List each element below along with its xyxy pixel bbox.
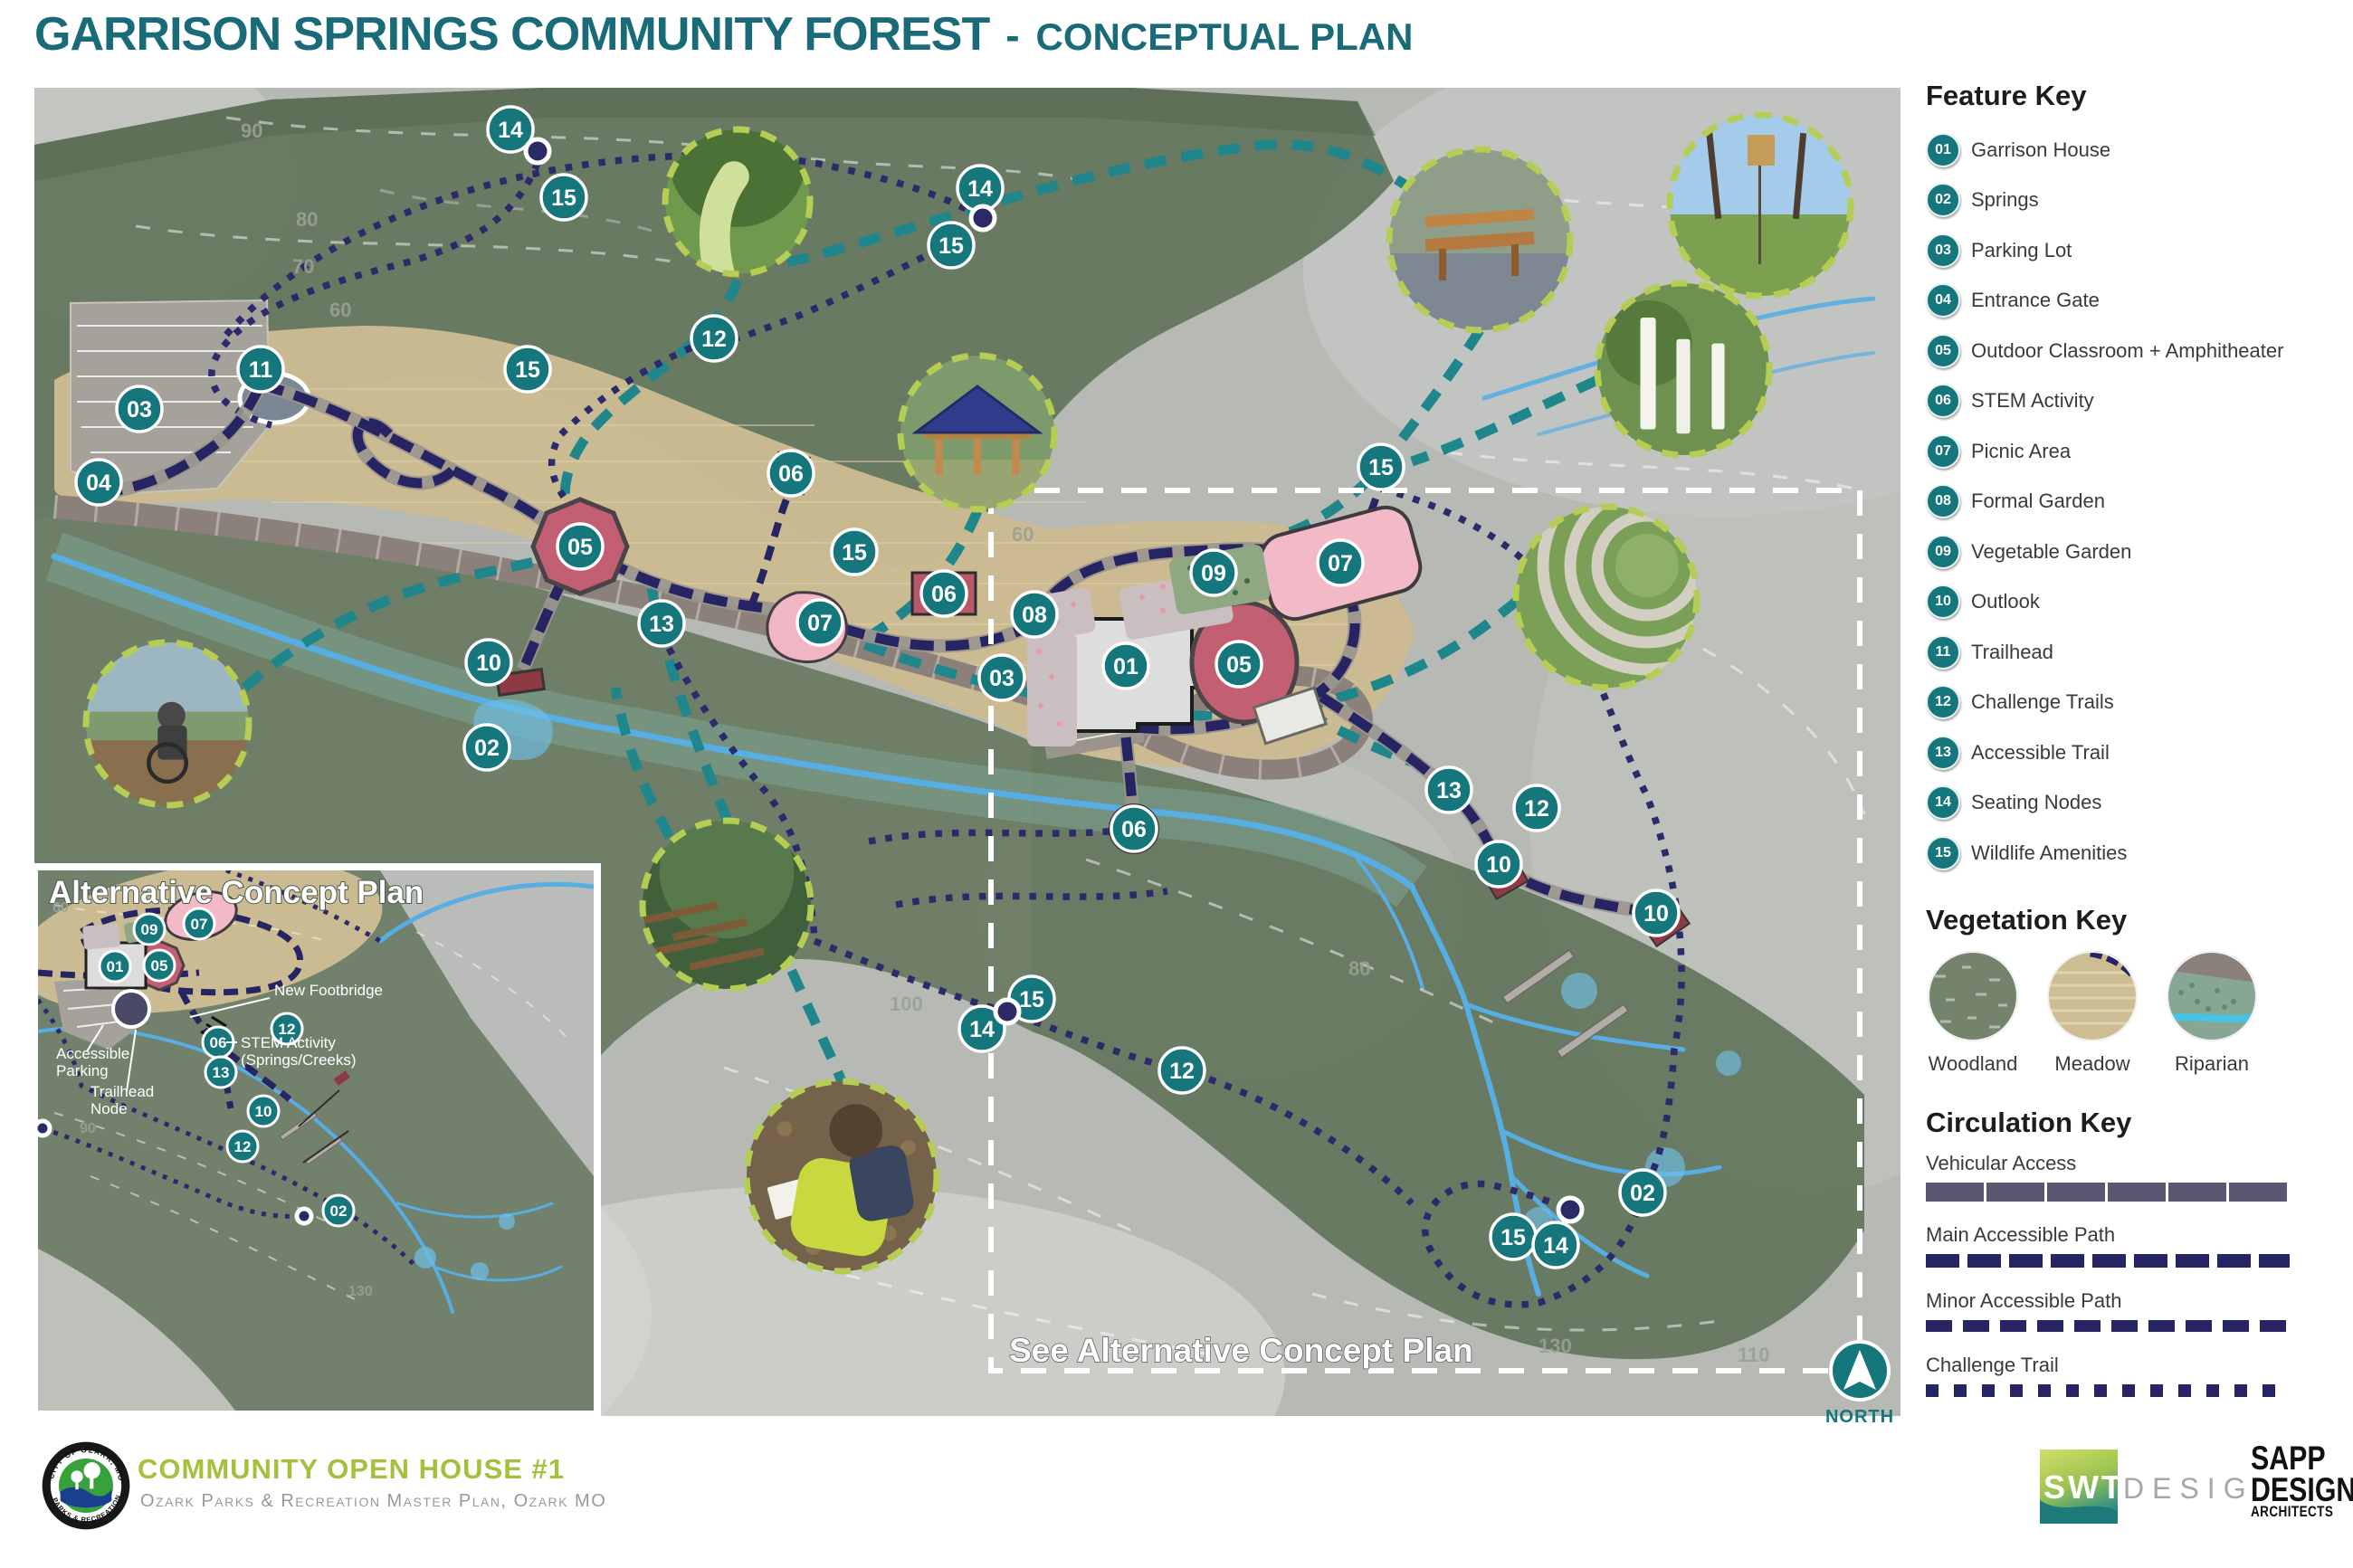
map-marker-09: 09 (134, 914, 165, 945)
map-marker-10: 10 (466, 640, 511, 685)
inset-title: Alternative Concept Plan (49, 875, 424, 910)
svg-text:14: 14 (967, 176, 993, 202)
map-marker-14: 14 (1533, 1222, 1578, 1268)
circulation-item-minor: Minor Accessible Path (1926, 1289, 2338, 1332)
feature-key-item-07: 07Picnic Area (1926, 426, 2338, 477)
north-arrow: NORTH (1825, 1342, 1894, 1427)
svg-text:04: 04 (86, 470, 111, 496)
feature-key-badge: 08 (1926, 484, 1960, 518)
feature-key-label: Vegetable Garden (1971, 540, 2131, 564)
feature-key-label: Challenge Trails (1971, 690, 2114, 714)
svg-text:06: 06 (210, 1034, 227, 1051)
feature-key-badge: 09 (1926, 535, 1960, 569)
svg-text:New Footbridge: New Footbridge (274, 982, 383, 999)
feature-key-label: Seating Nodes (1971, 791, 2101, 814)
feature-key-badge: 03 (1926, 233, 1960, 268)
feature-key-list: 01Garrison House02Springs03Parking Lot04… (1926, 125, 2338, 879)
map-marker-08: 08 (1012, 592, 1057, 637)
circulation-item-vehicular: Vehicular Access (1926, 1152, 2338, 1202)
map-marker-12: 12 (691, 316, 737, 361)
feature-key-badge: 15 (1926, 836, 1960, 870)
map-marker-03: 03 (117, 386, 162, 432)
swt-text: SWT (2043, 1468, 2124, 1506)
circulation-item-main: Main Accessible Path (1926, 1223, 2338, 1268)
map-marker-02: 02 (323, 1195, 354, 1226)
circulation-label: Challenge Trail (1926, 1354, 2338, 1377)
vegetation-swatch-meadow: Meadow (2045, 949, 2139, 1076)
feature-key-badge: 05 (1926, 334, 1960, 368)
svg-text:05: 05 (151, 957, 168, 974)
feature-key-label: Springs (1971, 188, 2039, 212)
trail-endpoint-dot (1558, 1198, 1582, 1221)
feature-key-item-12: 12Challenge Trails (1926, 678, 2338, 728)
vegetation-swatch-riparian: Riparian (2165, 949, 2259, 1076)
circulation-key-list: Vehicular AccessMain Accessible PathMino… (1926, 1152, 2338, 1397)
feature-key-label: Outlook (1971, 590, 2040, 613)
trail-endpoint-dot (995, 1000, 1019, 1023)
map-marker-15: 15 (541, 175, 586, 220)
contour-label: 70 (292, 255, 314, 278)
contour-label: 100 (890, 993, 923, 1015)
feature-key-label: Entrance Gate (1971, 289, 2100, 312)
map-marker-10: 10 (1634, 890, 1679, 936)
trail-endpoint-dot (971, 206, 995, 230)
trail-endpoint-dot (35, 1121, 50, 1136)
feature-key-label: Trailhead (1971, 641, 2053, 664)
circulation-item-challenge: Challenge Trail (1926, 1354, 2338, 1397)
sapp-line1: SAPP (2251, 1442, 2353, 1474)
svg-text:14: 14 (1543, 1233, 1568, 1259)
circulation-swatch-main (1926, 1254, 2290, 1268)
map-marker-12: 12 (227, 1131, 258, 1162)
map-marker-04: 04 (76, 460, 121, 505)
svg-text:10: 10 (476, 651, 501, 676)
feature-key-item-11: 11Trailhead (1926, 627, 2338, 678)
contour-label: 130 (1538, 1335, 1572, 1357)
map-marker-01: 01 (100, 951, 130, 982)
feature-key-item-05: 05Outdoor Classroom + Amphitheater (1926, 326, 2338, 376)
map-marker-06: 06 (1111, 806, 1157, 851)
svg-text:12: 12 (234, 1138, 252, 1155)
contour-label: 90 (80, 1121, 96, 1136)
map-marker-07: 07 (797, 600, 843, 645)
svg-text:06: 06 (931, 582, 957, 607)
feature-key-label: Wildlife Amenities (1971, 841, 2127, 865)
svg-text:02: 02 (1630, 1181, 1655, 1206)
svg-text:15: 15 (1500, 1225, 1526, 1250)
feature-key-item-13: 13Accessible Trail (1926, 727, 2338, 778)
feature-key-badge: 12 (1926, 685, 1960, 719)
svg-text:03: 03 (127, 397, 152, 423)
map-marker-01: 01 (1103, 643, 1148, 689)
feature-key-badge: 14 (1926, 785, 1960, 820)
sapp-line2: DESIGN (2251, 1474, 2353, 1506)
feature-key-item-09: 09Vegetable Garden (1926, 527, 2338, 577)
map-marker-15: 15 (929, 223, 974, 268)
map-marker-02: 02 (1620, 1170, 1665, 1215)
open-house-subtitle: Ozark Parks & Recreation Master Plan, Oz… (140, 1491, 606, 1512)
svg-text:15: 15 (515, 357, 540, 383)
map-marker-14: 14 (957, 166, 1003, 211)
svg-text:05: 05 (567, 535, 593, 560)
circulation-swatch-challenge (1926, 1384, 2290, 1397)
map-marker-10: 10 (248, 1096, 279, 1126)
map-marker-15: 15 (505, 347, 550, 392)
contour-label: 110 (1738, 1344, 1770, 1366)
sapp-design-logo: SAPP DESIGN ARCHITECTS (2251, 1442, 2353, 1520)
svg-text:06: 06 (778, 461, 804, 487)
svg-text:07: 07 (191, 916, 208, 933)
map-marker-11: 11 (238, 347, 283, 392)
svg-text:13: 13 (213, 1064, 230, 1081)
map-marker-05: 05 (557, 524, 603, 569)
contour-label: 130 (348, 1284, 373, 1299)
feature-key-label: Parking Lot (1971, 239, 2072, 262)
map-marker-10: 10 (1476, 841, 1521, 887)
feature-key-item-14: 14Seating Nodes (1926, 778, 2338, 829)
circulation-label: Vehicular Access (1926, 1152, 2338, 1175)
map-marker-13: 13 (205, 1057, 236, 1088)
feature-key-badge: 01 (1926, 133, 1960, 167)
feature-key-label: Picnic Area (1971, 440, 2071, 463)
svg-text:03: 03 (989, 666, 1015, 691)
map-marker-05: 05 (144, 950, 175, 981)
svg-text:05: 05 (1226, 652, 1252, 678)
vegetation-swatch-woodland: Woodland (1926, 949, 2020, 1076)
map-marker-09: 09 (1191, 550, 1236, 595)
feature-key-item-02: 02Springs (1926, 176, 2338, 226)
vegetation-label: Riparian (2175, 1052, 2249, 1076)
feature-key-item-04: 04Entrance Gate (1926, 276, 2338, 327)
map-marker-13: 13 (639, 601, 684, 646)
svg-text:12: 12 (1169, 1059, 1195, 1084)
map-marker-06: 06 (768, 451, 814, 496)
map-marker-02: 02 (464, 725, 510, 770)
map-marker-15: 15 (1491, 1214, 1536, 1259)
svg-text:14: 14 (498, 118, 523, 143)
svg-text:10: 10 (255, 1103, 272, 1120)
svg-text:08: 08 (1022, 603, 1047, 628)
svg-text:13: 13 (1436, 778, 1462, 803)
open-house-title: COMMUNITY OPEN HOUSE #1 (138, 1453, 565, 1486)
feature-key-item-15: 15Wildlife Amenities (1926, 828, 2338, 879)
alternative-concept-inset: Alternative Concept Plan 090701051206131… (5, 835, 597, 1414)
feature-key-badge: 11 (1926, 635, 1960, 670)
feature-key-badge: 06 (1926, 384, 1960, 418)
feature-key-item-01: 01Garrison House (1926, 125, 2338, 176)
circulation-swatch-minor (1926, 1320, 2290, 1332)
see-alternative-label: See Alternative Concept Plan (1009, 1332, 1473, 1369)
map-marker-13: 13 (1426, 767, 1472, 813)
conceptual-plan-page: GARRISON SPRINGS COMMUNITY FOREST - CONC… (0, 0, 2353, 1568)
map-marker-07: 07 (184, 908, 214, 939)
svg-text:10: 10 (1643, 901, 1669, 927)
feature-key-badge: 04 (1926, 283, 1960, 318)
swt-design-text: DESIGN (2123, 1472, 2244, 1505)
svg-text:13: 13 (649, 612, 674, 637)
map-marker-06: 06 (921, 571, 967, 616)
feature-key-badge: 13 (1926, 736, 1960, 770)
feature-key-label: Garrison House (1971, 138, 2110, 162)
feature-key-heading: Feature Key (1926, 80, 2338, 112)
feature-key-label: Accessible Trail (1971, 741, 2110, 765)
feature-key-item-06: 06STEM Activity (1926, 376, 2338, 427)
feature-key-badge: 10 (1926, 584, 1960, 619)
svg-text:07: 07 (807, 611, 833, 636)
map-marker-05: 05 (1216, 641, 1262, 687)
svg-text:07: 07 (1328, 551, 1353, 576)
trail-endpoint-dot (526, 139, 549, 163)
svg-text:02: 02 (474, 736, 500, 761)
feature-key-badge: 07 (1926, 434, 1960, 469)
vegetation-key-row: WoodlandMeadowRiparian (1926, 949, 2338, 1076)
habitat-posts-photo (1597, 283, 1769, 455)
svg-text:06: 06 (1121, 817, 1147, 842)
map-marker-12: 12 (1514, 785, 1559, 831)
circulation-swatch-vehicular (1926, 1183, 2290, 1202)
contour-label: 60 (52, 900, 69, 916)
stem-activity-photo (747, 1081, 937, 1271)
svg-text:15: 15 (842, 540, 867, 565)
pavilion-photo (900, 356, 1054, 513)
legend-panel: Feature Key 01Garrison House02Springs03P… (1926, 80, 2338, 1419)
circulation-label: Main Accessible Path (1926, 1223, 2338, 1247)
contour-label: 90 (241, 119, 262, 142)
vegetation-key-heading: Vegetation Key (1926, 904, 2338, 936)
svg-text:15: 15 (1368, 455, 1394, 480)
svg-text:09: 09 (141, 921, 158, 938)
map-marker-07: 07 (1318, 540, 1363, 585)
svg-text:14: 14 (969, 1017, 995, 1042)
svg-text:01: 01 (1113, 654, 1138, 679)
circulation-label: Minor Accessible Path (1926, 1289, 2338, 1313)
map-marker-12: 12 (1159, 1048, 1205, 1093)
svg-text:15: 15 (551, 185, 576, 211)
feature-key-label: Formal Garden (1971, 489, 2105, 513)
feature-key-item-08: 08Formal Garden (1926, 477, 2338, 527)
svg-text:10: 10 (1486, 852, 1511, 878)
svg-text:09: 09 (1201, 561, 1226, 586)
circulation-key-heading: Circulation Key (1926, 1107, 2338, 1139)
svg-text:11: 11 (249, 357, 273, 383)
svg-text:01: 01 (107, 958, 124, 975)
contour-label: 80 (1348, 957, 1370, 980)
vegetation-label: Woodland (1929, 1052, 2018, 1076)
svg-text:15: 15 (938, 233, 964, 259)
svg-text:12: 12 (701, 327, 727, 352)
contour-label: 60 (329, 299, 351, 321)
footer: CITY OF OZARK, MO PARKS & RECREATION COM… (0, 1435, 2353, 1568)
svg-text:12: 12 (1524, 796, 1549, 822)
contour-label: 60 (1012, 523, 1034, 546)
feature-key-item-03: 03Parking Lot (1926, 225, 2338, 276)
svg-text:15: 15 (1019, 987, 1044, 1012)
feature-key-badge: 02 (1926, 183, 1960, 217)
swt-design-logo: SWT DESIGN (2036, 1444, 2244, 1535)
city-of-ozark-logo: CITY OF OZARK, MO PARKS & RECREATION (41, 1440, 131, 1531)
contour-label: 80 (296, 208, 318, 231)
map-marker-15: 15 (832, 529, 877, 575)
map-marker-03: 03 (979, 655, 1024, 700)
north-label: NORTH (1825, 1407, 1894, 1427)
vegetation-label: Meadow (2054, 1052, 2129, 1076)
feature-key-label: Outdoor Classroom + Amphitheater (1971, 339, 2283, 363)
svg-text:02: 02 (330, 1202, 348, 1220)
map-marker-15: 15 (1358, 444, 1404, 489)
feature-key-label: STEM Activity (1971, 389, 2094, 413)
trail-endpoint-dot (297, 1209, 311, 1223)
feature-key-item-10: 10Outlook (1926, 577, 2338, 628)
